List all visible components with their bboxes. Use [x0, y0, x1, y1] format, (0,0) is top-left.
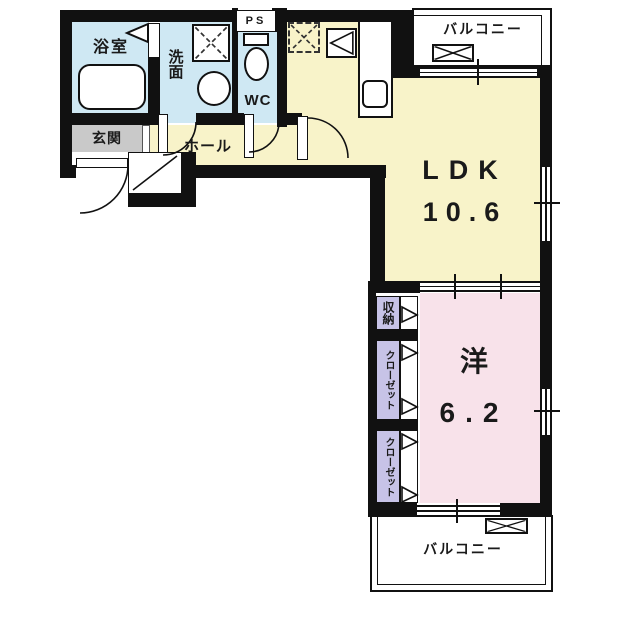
- bedroom-label: 洋: [444, 341, 504, 379]
- sliding-door-ldk-bedroom: [420, 281, 540, 292]
- toilet-tank: [243, 33, 269, 46]
- x-mark-icon: [290, 24, 318, 51]
- wall: [60, 113, 158, 125]
- window-bedroom-balcony: [417, 505, 500, 517]
- bedroom-area: 6.2: [424, 394, 524, 432]
- hall-label: ホール: [168, 132, 248, 158]
- washing-machine-space: [192, 24, 230, 62]
- wall: [412, 67, 420, 78]
- ps-label: PS: [246, 15, 267, 27]
- wall: [370, 165, 385, 293]
- wall: [540, 78, 552, 167]
- wall: [368, 420, 418, 430]
- wall: [148, 58, 160, 115]
- ldk-label: LDK: [390, 152, 540, 188]
- balcony-bottom-label: バルコニー: [404, 538, 522, 560]
- wall: [277, 8, 287, 127]
- pipe-space: PS: [236, 10, 276, 32]
- wall: [368, 503, 417, 517]
- wall: [368, 293, 376, 510]
- wall: [128, 194, 196, 207]
- x-mark-icon: [487, 520, 526, 532]
- entrance-door-arc: [80, 165, 128, 213]
- floor-plan: PS: [0, 0, 640, 640]
- closet-lower-folding-door: [400, 430, 418, 503]
- balcony-top-placement-box: [432, 44, 474, 62]
- ldk-door-leaf: [297, 116, 308, 160]
- wc-label: WC: [238, 88, 278, 112]
- entrance-door-leaf: [76, 158, 128, 168]
- wall: [368, 330, 418, 340]
- balcony-bottom-placement-box: [485, 518, 528, 534]
- kitchen-sink: [362, 80, 388, 108]
- bath-door: [148, 23, 160, 58]
- closet-lower-label: クローゼット: [378, 431, 398, 502]
- x-mark-icon: [194, 26, 228, 60]
- wall: [535, 67, 552, 78]
- refrigerator-space: [288, 22, 320, 53]
- window-bedroom-right: [540, 389, 552, 435]
- wash-basin: [197, 71, 231, 106]
- storage-label: 収納: [377, 298, 399, 328]
- window-ldk-balcony: [420, 67, 537, 78]
- wall: [540, 241, 552, 389]
- wall: [500, 503, 552, 517]
- range-space: [326, 28, 357, 58]
- closet-upper-folding-door: [400, 340, 418, 420]
- balcony-top-label: バルコニー: [428, 19, 538, 39]
- triangle-left-icon: [328, 30, 355, 56]
- wall: [368, 281, 420, 293]
- toilet-bowl: [244, 47, 269, 81]
- closet-upper-label: クローゼット: [378, 342, 398, 418]
- wall: [60, 165, 76, 178]
- wall: [196, 165, 386, 178]
- bath-label: 浴室: [80, 33, 142, 57]
- storage-folding-door: [400, 296, 418, 330]
- washroom-label: 洗面: [163, 32, 187, 96]
- wall: [393, 10, 412, 78]
- x-mark-icon: [434, 46, 472, 60]
- window-ldk-right: [540, 167, 552, 241]
- entrance-label: 玄関: [76, 127, 138, 149]
- entrance-alcove: [128, 152, 182, 194]
- ldk-area: 10.6: [390, 194, 540, 230]
- bathtub: [78, 64, 146, 110]
- wall: [60, 10, 72, 178]
